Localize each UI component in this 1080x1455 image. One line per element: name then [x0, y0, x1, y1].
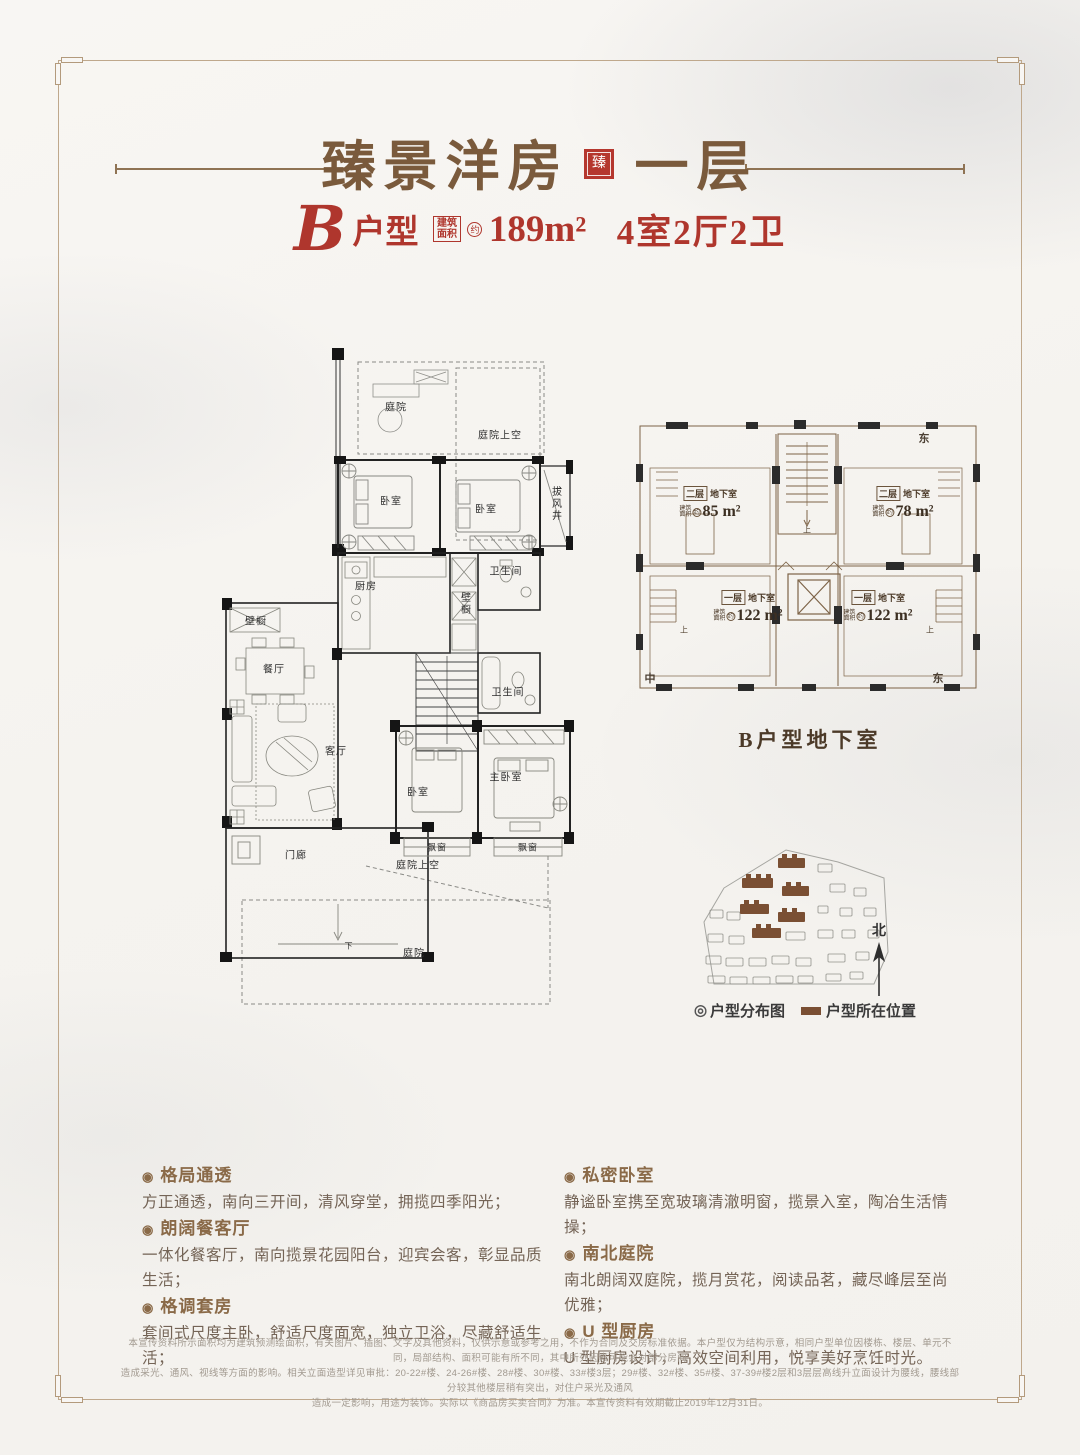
seal-icon: 臻 [584, 149, 614, 179]
room-label-courtyard-bottom: 庭院 [403, 945, 425, 960]
disclaimer-line: 造成一定影响，用途为装饰。实际以《商品房买卖合同》为准。本宣传资料有效期截止20… [120, 1396, 960, 1411]
room-label-courtyard-sky-mid: 庭院上空 [396, 857, 440, 872]
site-plan-drawing [692, 838, 892, 996]
room-label-porch: 门廊 [285, 847, 307, 862]
room-layout-value: 4室2厅2卫 [617, 204, 787, 255]
basement-caption: B户型地下室 [626, 724, 994, 754]
bullet-icon: ◉ [564, 1169, 576, 1184]
frame-corner-ornament [997, 55, 1027, 85]
frame-corner-ornament [53, 1375, 83, 1405]
legend-distribution: ◎ 户型分布图 [694, 1000, 785, 1021]
direction-label-east: 东 [933, 670, 944, 686]
room-label-living: 客厅 [325, 743, 347, 758]
stair-down-label: 下 [345, 941, 354, 952]
unit-letter: B [294, 198, 346, 260]
room-label-closet-a: 壁橱 [457, 592, 472, 616]
basement-unit-label: 一层地下室 建筑面积约122 m² [843, 590, 912, 625]
approx-badge: 约 [467, 222, 482, 237]
disclaimer: 本宣传资料所示面积均为建筑预测绘面积，有关图片、插图、文字及其他资料，仅供示意或… [120, 1336, 960, 1411]
basement-unit-label: 二层地下室 建筑面积约78 m² [872, 486, 933, 521]
frame-corner-ornament [997, 1375, 1027, 1405]
room-label-courtyard-sky: 庭院上空 [478, 427, 522, 442]
area-value: 189m² [489, 208, 586, 251]
disclaimer-line: 本宣传资料所示面积均为建筑预测绘面积，有关图片、插图、文字及其他资料，仅供示意或… [120, 1336, 960, 1366]
direction-label-center: 中 [645, 670, 656, 686]
stair-up-label: 上 [680, 625, 688, 636]
room-label-bay-window-a: 飘窗 [427, 841, 447, 854]
room-label-bath-a: 卫生间 [490, 563, 523, 578]
room-label-bath-b: 卫生间 [492, 684, 525, 699]
feature-title: ◉格调套房 [142, 1293, 552, 1321]
unit-type-label: 户型 [353, 205, 419, 253]
feature-title: ◉南北庭院 [564, 1240, 962, 1268]
feature-body: 一体化餐客厅，南向揽景花园阳台，迎宾会客，彰显品质生活； [142, 1243, 552, 1293]
room-label-bedroom-a: 卧室 [380, 493, 402, 508]
page-title: 臻景洋房 臻 一层 [0, 134, 1080, 200]
legend-location: 户型所在位置 [801, 1000, 916, 1021]
site-plan [692, 838, 892, 996]
north-label: 北 [866, 920, 892, 940]
bullet-icon: ◉ [142, 1222, 154, 1237]
site-plan-legend: ◎ 户型分布图 户型所在位置 [660, 1000, 950, 1021]
room-label-closet-b: 壁橱 [245, 613, 267, 628]
room-label-bedroom-c: 卧室 [407, 784, 429, 799]
room-label-bedroom-b: 卧室 [475, 501, 497, 516]
first-floor-plan-drawing [218, 348, 580, 1012]
feature-body: 南北朗阔双庭院，揽月赏花，阅读品茗，藏尽峰层至尚优雅； [564, 1268, 962, 1318]
frame-corner-ornament [53, 55, 83, 85]
disclaimer-line: 造成采光、通风、视线等方面的影响。相关立面造型详见审批：20-22#楼、24-2… [120, 1366, 960, 1396]
feature-title: ◉朗阔餐客厅 [142, 1215, 552, 1243]
room-label-wind-shaft: 拔风井 [548, 486, 563, 522]
highlight-swatch-icon [801, 1007, 821, 1015]
stair-up-label: 上 [926, 625, 934, 636]
title-main: 臻景洋房 [322, 134, 570, 200]
direction-label-east: 东 [919, 430, 930, 446]
room-label-master-bedroom: 主卧室 [490, 769, 523, 784]
bullet-icon: ◉ [142, 1300, 154, 1315]
room-label-dining: 餐厅 [263, 661, 285, 676]
north-arrow-icon [872, 942, 886, 998]
basement-unit-label: 二层地下室 建筑面积约85 m² [679, 486, 740, 521]
bullet-icon: ◉ [564, 1247, 576, 1262]
bullet-icon: ◉ [142, 1169, 154, 1184]
room-label-courtyard-top: 庭院 [385, 399, 407, 414]
circle-marker-icon: ◎ [694, 1001, 707, 1020]
first-floor-plan: 庭院 庭院上空 卧室 卧室 拔风井 厨房 壁橱 卫生间 壁橱 餐厅 客厅 卫生间… [218, 348, 580, 1012]
room-label-kitchen: 厨房 [355, 578, 377, 593]
area-box-label: 建筑 面积 [433, 216, 461, 242]
floorplan-poster: { "header": { "title": "臻景洋房", "floor": … [0, 0, 1080, 1455]
room-label-bay-window-b: 飘窗 [518, 841, 538, 854]
basement-plan: 二层地下室 建筑面积约85 m² 二层地下室 建筑面积约78 m² 一层地下室 … [626, 406, 994, 722]
unit-subtitle: B 户型 建筑 面积 约 189m² 4室2厅2卫 [0, 198, 1080, 262]
feature-title: ◉私密卧室 [564, 1162, 962, 1190]
feature-title: ◉格局通透 [142, 1162, 552, 1190]
feature-body: 静谧卧室携至宽玻璃清澈明窗，揽景入室，陶冶生活情操； [564, 1190, 962, 1240]
feature-body: 方正通透，南向三开间，清风穿堂，拥揽四季阳光； [142, 1190, 552, 1215]
stair-up-label: 上 [803, 525, 811, 536]
title-floor: 一层 [634, 134, 758, 200]
basement-unit-label: 一层地下室 建筑面积约122 m² [713, 590, 782, 625]
north-indicator: 北 [866, 920, 892, 998]
